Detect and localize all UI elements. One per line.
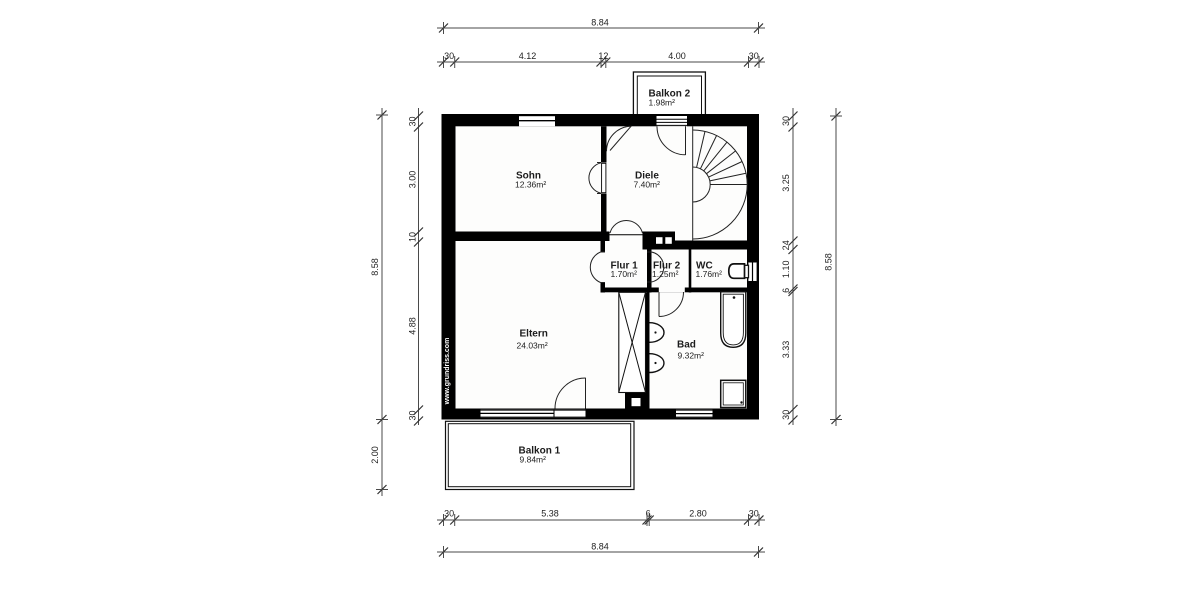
svg-text:8.58: 8.58 [824, 253, 834, 271]
svg-text:2.80: 2.80 [689, 509, 707, 519]
svg-text:4.00: 4.00 [668, 51, 686, 61]
svg-text:4.12: 4.12 [519, 51, 537, 61]
svg-text:30: 30 [408, 410, 418, 420]
svg-text:www.grundriss.com: www.grundriss.com [444, 338, 451, 406]
svg-text:30: 30 [781, 116, 791, 126]
svg-text:5.38: 5.38 [541, 509, 559, 519]
svg-text:1.98m²: 1.98m² [649, 98, 676, 108]
svg-text:30: 30 [749, 509, 759, 519]
svg-text:1.70m²: 1.70m² [611, 269, 638, 279]
svg-text:6: 6 [646, 509, 651, 519]
svg-text:7.40m²: 7.40m² [634, 180, 661, 190]
svg-text:12: 12 [598, 51, 608, 61]
svg-text:1.10: 1.10 [781, 261, 791, 279]
svg-text:6: 6 [781, 288, 791, 293]
svg-text:30: 30 [444, 51, 454, 61]
svg-text:9.84m²: 9.84m² [520, 455, 547, 465]
svg-text:24: 24 [781, 240, 791, 250]
svg-text:24.03m²: 24.03m² [517, 341, 548, 351]
svg-text:1.25m²: 1.25m² [652, 269, 679, 279]
svg-text:1.76m²: 1.76m² [696, 269, 723, 279]
svg-text:3.00: 3.00 [408, 171, 418, 189]
svg-text:8.84: 8.84 [591, 18, 609, 28]
svg-text:12.36m²: 12.36m² [515, 180, 546, 190]
svg-text:Bad: Bad [677, 340, 696, 351]
svg-text:30: 30 [408, 116, 418, 126]
svg-text:10: 10 [408, 232, 418, 242]
svg-text:30: 30 [781, 410, 791, 420]
svg-text:8.84: 8.84 [591, 542, 609, 552]
svg-text:30: 30 [749, 51, 759, 61]
svg-text:Eltern: Eltern [520, 329, 548, 340]
svg-text:2.00: 2.00 [370, 446, 380, 464]
svg-text:3.33: 3.33 [781, 341, 791, 359]
svg-text:4.88: 4.88 [408, 317, 418, 335]
svg-text:9.32m²: 9.32m² [678, 351, 705, 361]
svg-text:8.58: 8.58 [370, 258, 380, 276]
svg-text:30: 30 [444, 509, 454, 519]
svg-text:3.25: 3.25 [781, 174, 791, 192]
